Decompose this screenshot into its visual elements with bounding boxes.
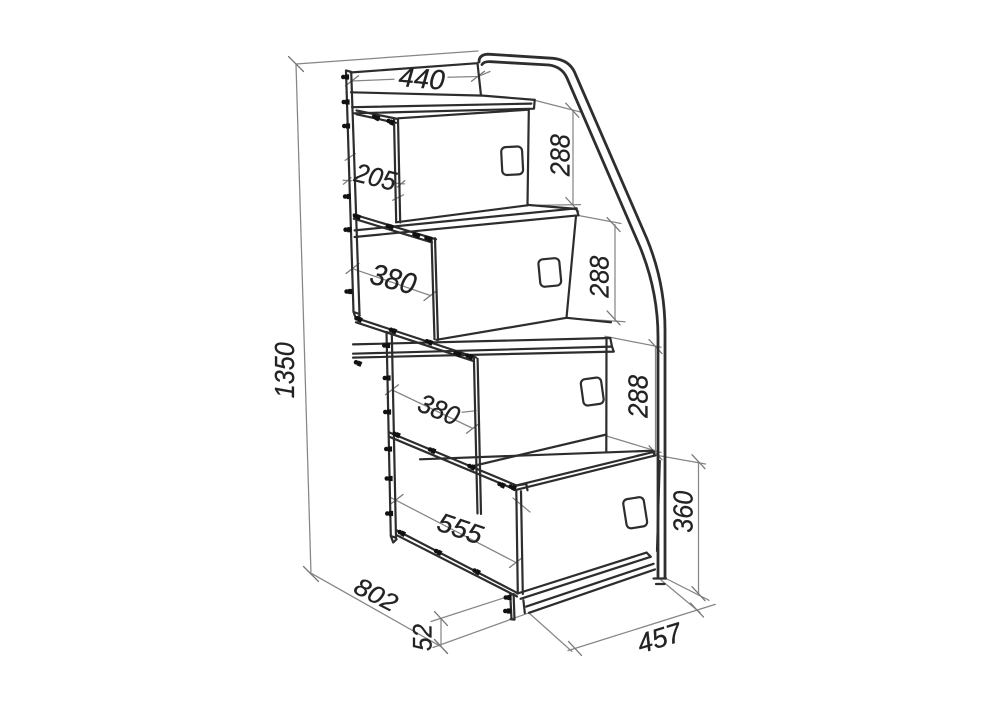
svg-text:440: 440 xyxy=(397,61,446,96)
svg-text:205: 205 xyxy=(351,157,401,197)
svg-text:457: 457 xyxy=(633,616,687,659)
svg-text:1350: 1350 xyxy=(269,342,300,399)
svg-text:360: 360 xyxy=(668,490,699,533)
svg-text:288: 288 xyxy=(585,256,615,299)
svg-text:288: 288 xyxy=(545,134,576,177)
svg-text:802: 802 xyxy=(349,572,402,617)
svg-text:52: 52 xyxy=(408,624,438,651)
svg-text:288: 288 xyxy=(622,374,653,419)
svg-text:380: 380 xyxy=(367,258,420,302)
svg-text:380: 380 xyxy=(414,388,464,432)
